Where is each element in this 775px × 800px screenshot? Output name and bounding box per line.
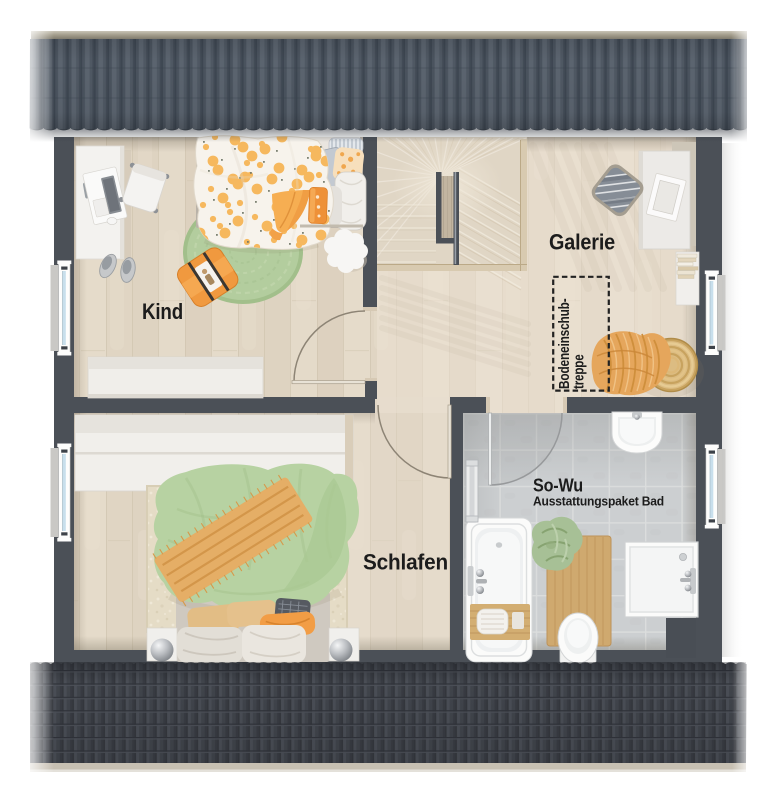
svg-text:Schlafen: Schlafen xyxy=(363,550,448,575)
svg-text:Galerie: Galerie xyxy=(549,230,615,255)
svg-text:Ausstattungspaket Bad: Ausstattungspaket Bad xyxy=(533,494,664,509)
svg-text:Kind: Kind xyxy=(142,299,183,324)
svg-text:treppe: treppe xyxy=(571,355,588,390)
svg-text:So-Wu: So-Wu xyxy=(533,476,583,496)
